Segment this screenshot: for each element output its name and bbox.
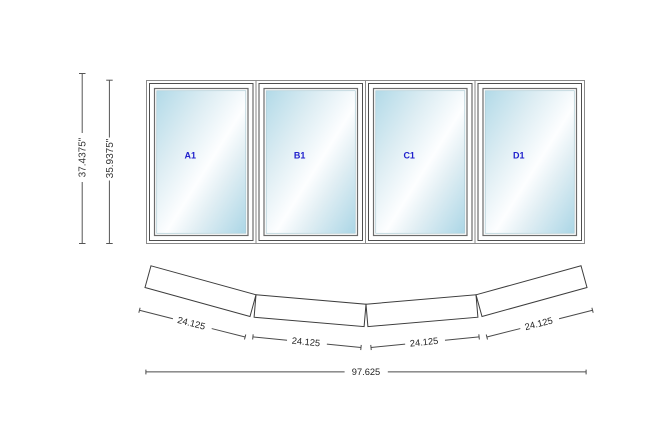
svg-text:35.9375": 35.9375" — [105, 138, 116, 178]
svg-text:97.625: 97.625 — [352, 367, 380, 377]
svg-text:37.4375": 37.4375" — [78, 137, 89, 177]
svg-text:C1: C1 — [403, 151, 415, 161]
svg-text:B1: B1 — [294, 151, 306, 161]
svg-text:A1: A1 — [185, 151, 197, 161]
svg-text:D1: D1 — [513, 151, 525, 161]
